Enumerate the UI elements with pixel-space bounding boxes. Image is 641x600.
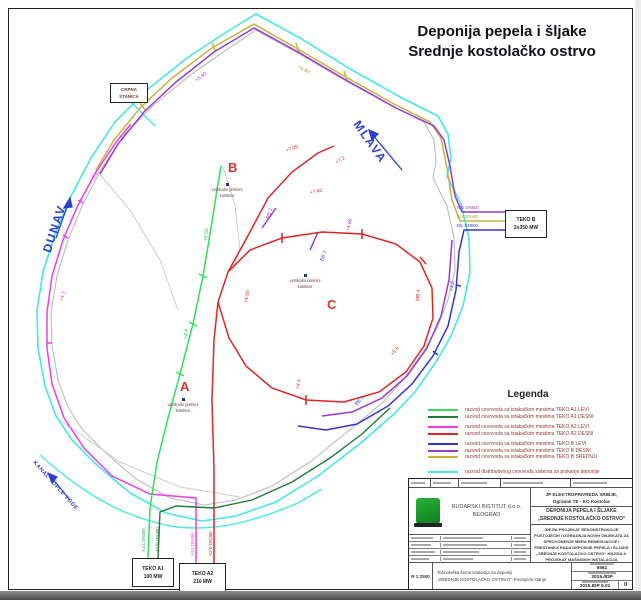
company-logo-icon <box>416 498 440 524</box>
legend-item: razvod cevovoda sa istakačkim mestima TE… <box>428 431 628 438</box>
collector-text: vertikalni prelivni <box>290 278 321 283</box>
drawing-title-cell: Tehnološka šema istakanja na deponiji „S… <box>433 563 572 589</box>
signature-row <box>409 549 530 556</box>
title-block: RUDARSKI INSTITUT d.o.o. BEOGRAD <box>408 478 633 590</box>
region-label-a: A <box>180 379 189 394</box>
legend-label: razvod cevovoda sa istakačkim mestima TE… <box>465 424 589 430</box>
teko-a1-line1: TEKO A1 <box>142 565 163 573</box>
pipeline-annotation: MB 4 <box>415 289 422 301</box>
year-cell: 2015./IDP <box>572 572 632 581</box>
page-title-line1: Deponija pepela i šljake <box>378 22 626 42</box>
pipe-label-a2-desni: A2/D DN450 <box>208 531 213 556</box>
pipe-label-b-levi: B/L DN500 <box>457 223 478 228</box>
pipeline-annotation: +4.4 <box>183 329 190 339</box>
company-name: RUDARSKI INSTITUT d.o.o. BEOGRAD <box>445 503 528 520</box>
collector-dot-icon <box>304 274 307 277</box>
collector-dot-icon <box>226 183 229 186</box>
legend-swatch <box>428 443 458 445</box>
crpna-line1: CRPNA <box>121 86 137 93</box>
page-title-line2: Srednje kostolačko ostrvo <box>378 42 626 62</box>
company-line2: BEOGRAD <box>473 512 501 518</box>
pipe-label-b-desni: B/D DN500 <box>457 205 479 210</box>
strip-cell <box>459 479 501 487</box>
project-number: 6561 <box>597 566 608 571</box>
teko-b-line1: TEKO B <box>517 216 536 224</box>
strip-cell <box>571 479 632 487</box>
legend-title: Legenda <box>428 389 628 400</box>
teko-b-line2: 2x350 MW <box>514 224 538 232</box>
page-title: Deponija pepela i šljake Srednje kostola… <box>378 22 626 61</box>
collector-text: vertikalni prelivni <box>168 402 199 407</box>
legend-label: razvod cevovoda sa istakačkim mestima TE… <box>465 431 593 437</box>
collector-text: kolektor <box>298 284 313 289</box>
company-row: RUDARSKI INSTITUT d.o.o. BEOGRAD <box>409 488 530 535</box>
teko-a1-line2: 100 MW <box>144 573 163 581</box>
teko-a2-line1: TEKO A2 <box>192 570 213 578</box>
drawing-title-line1: Tehnološka šema istakanja na deponiji <box>437 569 567 576</box>
pipeline-annotation: +6.60 <box>203 228 210 241</box>
pipeline-teko-b-desni-arc <box>262 208 452 416</box>
object-cell: DEPONIJA PEPELA I ŠLJAKE „SREDNJE KOSTOL… <box>531 507 632 525</box>
year-value: 2015./IDP <box>591 575 612 580</box>
region-label-b: B <box>228 160 237 175</box>
collector-dot-icon <box>182 398 185 401</box>
scale-cell: R 1:2500 <box>409 563 433 589</box>
collector-text: kolektor <box>220 193 235 198</box>
drawing-number-cell: 2015.IDP 6.01 0 <box>572 581 632 589</box>
signature-row <box>409 542 530 549</box>
legend-swatch <box>428 471 458 473</box>
collector-label-c: vertikalni prelivni kolektor <box>270 274 340 289</box>
investor-cell: JP ELEKTROPRIVREDA SRBIJE, Ogranak TE - … <box>531 488 632 507</box>
drawing-title-line2: „SREDNJE KOSTOLAČKO OSTRVO“: Postojeće s… <box>437 576 567 583</box>
legend-label: razvod distributivnog cevovoda sistema z… <box>465 469 600 475</box>
island-outer-boundary <box>37 14 470 521</box>
pipe-label-a2-levi: A2/L DN450 <box>190 532 195 556</box>
strip-cell <box>501 479 571 487</box>
company-line1: RUDARSKI INSTITUT d.o.o. <box>452 504 522 510</box>
legend-swatch <box>428 416 458 418</box>
collector-label-b: vertikalni prelivni kolektor <box>192 183 262 198</box>
legend-label: razvod cevovoda sa istakačkim mestima TE… <box>465 448 591 454</box>
title-block-right: JP ELEKTROPRIVREDA SRBIJE, Ogranak TE - … <box>531 488 632 562</box>
strip-cell <box>431 479 459 487</box>
legend-label: razvod cevovoda sa istakačkim mestima TE… <box>465 407 589 413</box>
pipe-label-a1-desni: A1/D DN400 <box>155 527 160 552</box>
legend-swatch <box>428 426 458 428</box>
pipeline-teko-a1-levi <box>148 166 221 558</box>
project-number-cell: 6561 <box>572 563 632 572</box>
title-block-left: RUDARSKI INSTITUT d.o.o. BEOGRAD <box>409 488 531 562</box>
project-description: IDEJNI PROJEKAT REKONSTRUKCIJE POSTOJEĆI… <box>531 525 632 565</box>
region-label-c: C <box>327 297 336 312</box>
legend-swatch <box>428 433 458 435</box>
object-line1: DEPONIJA PEPELA I ŠLJAKE <box>531 507 632 516</box>
drawing-sheet: Deponija pepela i šljake Srednje kostola… <box>0 0 641 600</box>
title-block-bottom: R 1:2500 Tehnološka šema istakanja na de… <box>409 562 632 589</box>
revision-number: 0 <box>618 581 632 589</box>
legend-label: razvod cevovoda sa istakačkim mestima TE… <box>465 414 593 420</box>
crpna-line2: STANICA <box>119 93 139 100</box>
collector-text: vertikalni prelivni <box>212 187 243 192</box>
legend-item: razvod cevovoda sa istakačkim mestima TE… <box>428 454 628 461</box>
pipe-label-a1-levi: A1/L DN400 <box>141 528 146 552</box>
crpna-stanica-box: CRPNA STANICA <box>110 83 148 103</box>
investor-line1: JP ELEKTROPRIVREDA SRBIJE, <box>546 492 617 497</box>
legend-item: razvod distributivnog cevovoda sistema z… <box>428 469 628 476</box>
strip-cell <box>409 479 431 487</box>
signature-row <box>409 535 530 542</box>
pipe-label-b-srednji: B/S DN500 <box>457 214 479 219</box>
drawing-number: 2015.IDP 6.01 <box>580 584 611 589</box>
legend-swatch <box>428 456 458 458</box>
title-block-header-strip <box>409 479 632 488</box>
distribution-pipeline <box>40 101 322 528</box>
page-bottom-edge <box>0 591 641 600</box>
legend-label: razvod cevovoda sa istakačkim mestima TE… <box>465 454 597 460</box>
teko-a2-box: TEKO A2 210 MW <box>179 563 226 592</box>
object-line2: „SREDNJE KOSTOLAČKO OSTRVO“ <box>531 515 632 524</box>
teko-a1-box: TEKO A1 100 MW <box>132 558 174 587</box>
collector-text: kolektor <box>176 408 191 413</box>
legend-item: razvod cevovoda sa istakačkim mestima TE… <box>428 414 628 421</box>
investor-line2: Ogranak TE - KO Kostolac <box>553 499 610 504</box>
pipeline-annotation: +4.6 <box>449 281 456 291</box>
teko-a2-line2: 210 MW <box>193 578 212 586</box>
legend-swatch <box>428 409 458 411</box>
pipeline-teko-a2-desni <box>212 146 433 563</box>
drawing-numbers: 6561 2015./IDP 2015.IDP 6.01 0 <box>572 563 632 589</box>
legend-swatch <box>428 450 458 452</box>
legend: Legenda razvod cevovoda sa istakačkim me… <box>428 389 628 475</box>
legend-label: razvod cevovoda sa istakačkim mestima TE… <box>465 441 586 447</box>
collector-label-a: vertikalni prelivni kolektor <box>148 398 218 413</box>
teko-b-box: TEKO B 2x350 MW <box>505 210 547 238</box>
